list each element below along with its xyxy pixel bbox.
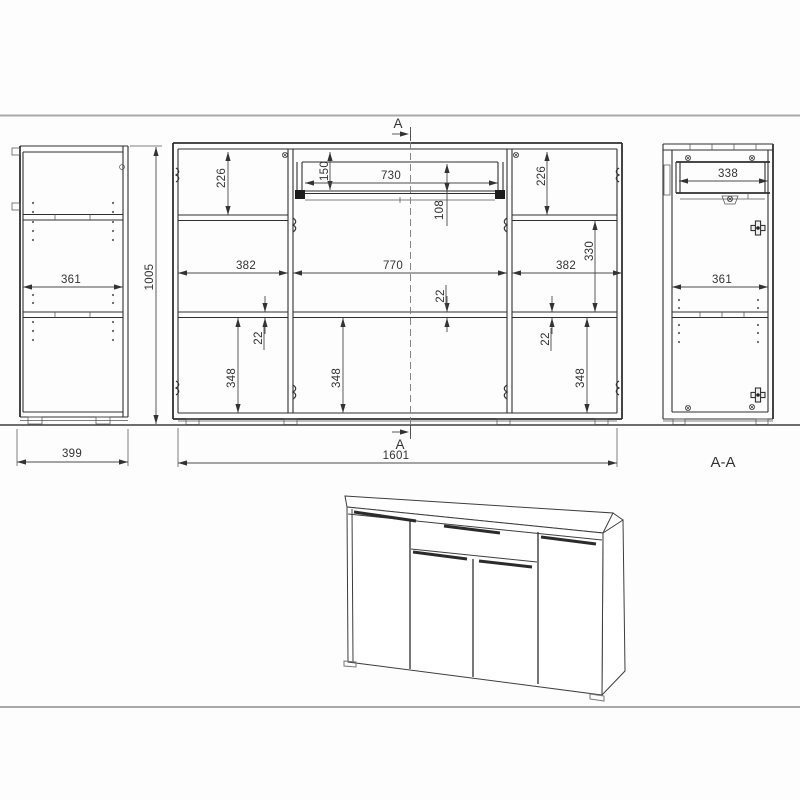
dim-label-22-center: 22 <box>435 289 447 302</box>
dim-label-770: 770 <box>383 260 403 272</box>
technical-drawing-canvas: 361 399 1005 <box>0 0 800 800</box>
drawer-slide-bracket <box>295 190 305 199</box>
dim-drawer-front-height: 150 <box>319 152 333 190</box>
section-marker-top: A <box>392 116 411 141</box>
dim-left-section-height: 226 <box>216 152 231 215</box>
screw-icon <box>749 155 754 160</box>
dim-label-330: 330 <box>584 241 596 261</box>
dim-label-348-left: 348 <box>226 368 238 388</box>
dim-right-shelf-spacing: 330 <box>584 221 598 312</box>
dim-label-730: 730 <box>381 170 401 182</box>
dim-label-22-left: 22 <box>253 331 265 344</box>
section-marker-bottom-label: A <box>395 437 404 452</box>
dim-shelf-thickness-right: 22 <box>540 296 555 351</box>
dim-left-door-height: 348 <box>226 318 241 413</box>
dim-label-399: 399 <box>62 448 82 460</box>
screw-icon <box>749 404 754 409</box>
dim-shelf-thickness-left: 22 <box>253 296 268 350</box>
dim-right-section-height: 226 <box>536 152 550 215</box>
dim-right-section-width: 382 <box>512 260 622 276</box>
dim-label-226-right: 226 <box>536 166 548 186</box>
drawer-slide-bracket <box>495 190 505 199</box>
dim-middle-section-width: 770 <box>293 260 507 276</box>
cam-lock-icon <box>751 221 765 235</box>
dim-middle-door-height: 348 <box>331 318 346 413</box>
drawer-slide-bracket <box>722 196 738 204</box>
dim-label-226-left: 226 <box>216 168 228 188</box>
screw-icon <box>282 152 287 157</box>
dim-label-382-left: 382 <box>236 260 256 272</box>
screw-icon <box>685 405 690 410</box>
dim-label-1005: 1005 <box>144 264 156 291</box>
dim-left-section-width: 382 <box>178 260 288 276</box>
cam-lock-icon <box>751 388 765 402</box>
dim-label-348-middle: 348 <box>331 368 343 388</box>
dim-total-height: 1005 <box>130 146 162 424</box>
shelf-pin-holes-left-view <box>32 202 114 341</box>
dim-label-361-section: 361 <box>712 274 732 286</box>
shelf-pin-holes-section-view <box>678 299 759 343</box>
hinge-marks <box>176 168 619 399</box>
screw-icon <box>513 152 518 157</box>
dim-left-total-depth: 399 <box>17 429 128 466</box>
dim-label-150: 150 <box>319 161 331 181</box>
dim-drawer-width: 730 <box>305 170 498 186</box>
dim-label-348-right: 348 <box>575 368 587 388</box>
dim-label-22-right: 22 <box>540 332 552 345</box>
dim-right-door-height: 348 <box>575 318 590 413</box>
dim-drawer-box-height: 108 <box>434 164 450 226</box>
section-marker-top-label: A <box>393 116 402 131</box>
dim-section-inner-depth: 361 <box>672 274 768 290</box>
dim-label-108: 108 <box>434 200 446 220</box>
dim-label-361-left: 361 <box>61 274 81 286</box>
dim-label-338: 338 <box>718 168 738 180</box>
perspective-view <box>344 496 625 701</box>
technical-drawing-page: 361 399 1005 <box>0 0 800 800</box>
section-marker-bottom: A <box>392 426 411 453</box>
dim-section-drawer-depth: 338 <box>679 168 768 184</box>
dim-left-inner-depth: 361 <box>23 274 123 290</box>
screw-icon <box>685 155 690 160</box>
dim-shelf-thickness-center: 22 <box>435 285 450 332</box>
dim-label-382-right: 382 <box>556 260 576 272</box>
section-view-title: A-A <box>710 454 735 471</box>
